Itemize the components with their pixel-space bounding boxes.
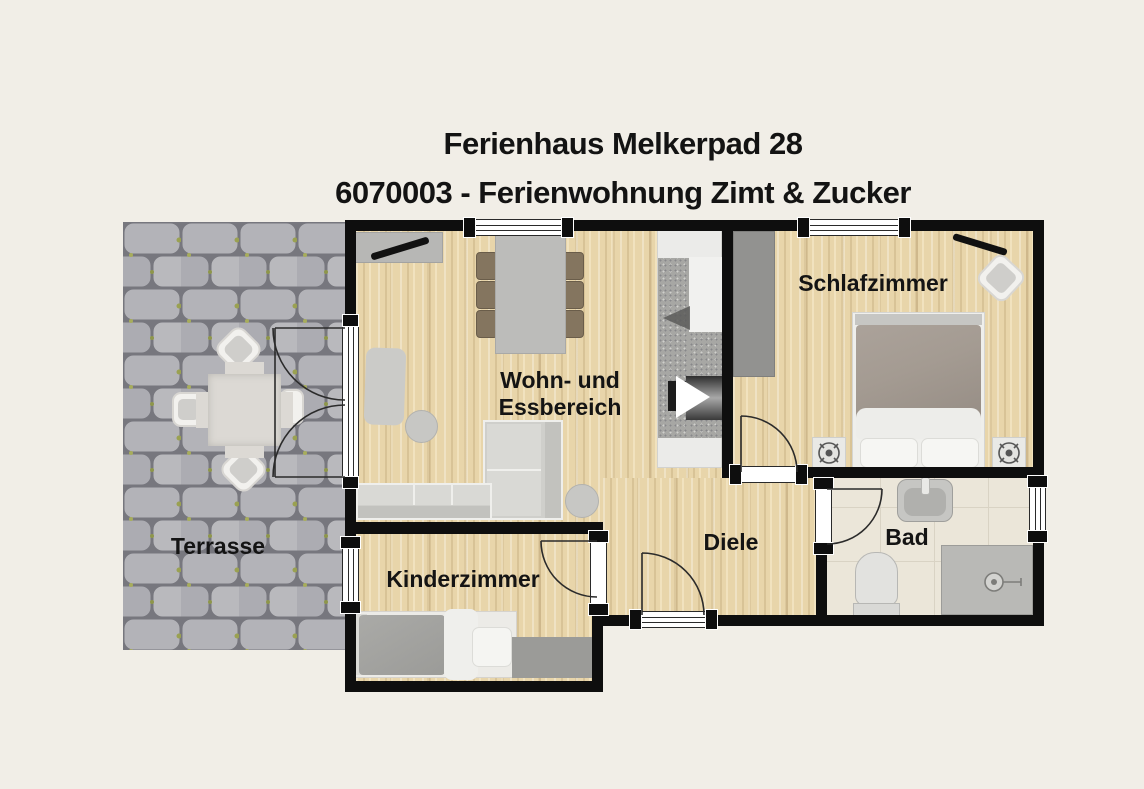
door-swing bbox=[741, 416, 797, 472]
shower-head-icon bbox=[985, 573, 1021, 591]
label-terrasse: Terrasse bbox=[148, 533, 288, 560]
door-swing bbox=[275, 328, 345, 477]
label-diele: Diele bbox=[691, 529, 771, 556]
label-wohnbereich-line2: Essbereich bbox=[480, 394, 640, 421]
label-schlafzimmer: Schlafzimmer bbox=[793, 270, 953, 297]
door-swing bbox=[642, 553, 704, 615]
lamp-icon bbox=[999, 443, 1019, 463]
label-bad: Bad bbox=[877, 524, 937, 551]
lamp-icon bbox=[819, 443, 839, 463]
door-swing bbox=[273, 328, 345, 400]
label-kinderzimmer: Kinderzimmer bbox=[383, 566, 543, 593]
label-wohnbereich: Wohn- und Essbereich bbox=[480, 367, 640, 421]
door-swing bbox=[273, 405, 345, 477]
label-wohnbereich-line1: Wohn- und bbox=[480, 367, 640, 394]
door-swing bbox=[541, 541, 597, 597]
door-swing bbox=[827, 489, 882, 544]
floorplan-page: Ferienhaus Melkerpad 28 6070003 - Ferien… bbox=[0, 0, 1144, 789]
